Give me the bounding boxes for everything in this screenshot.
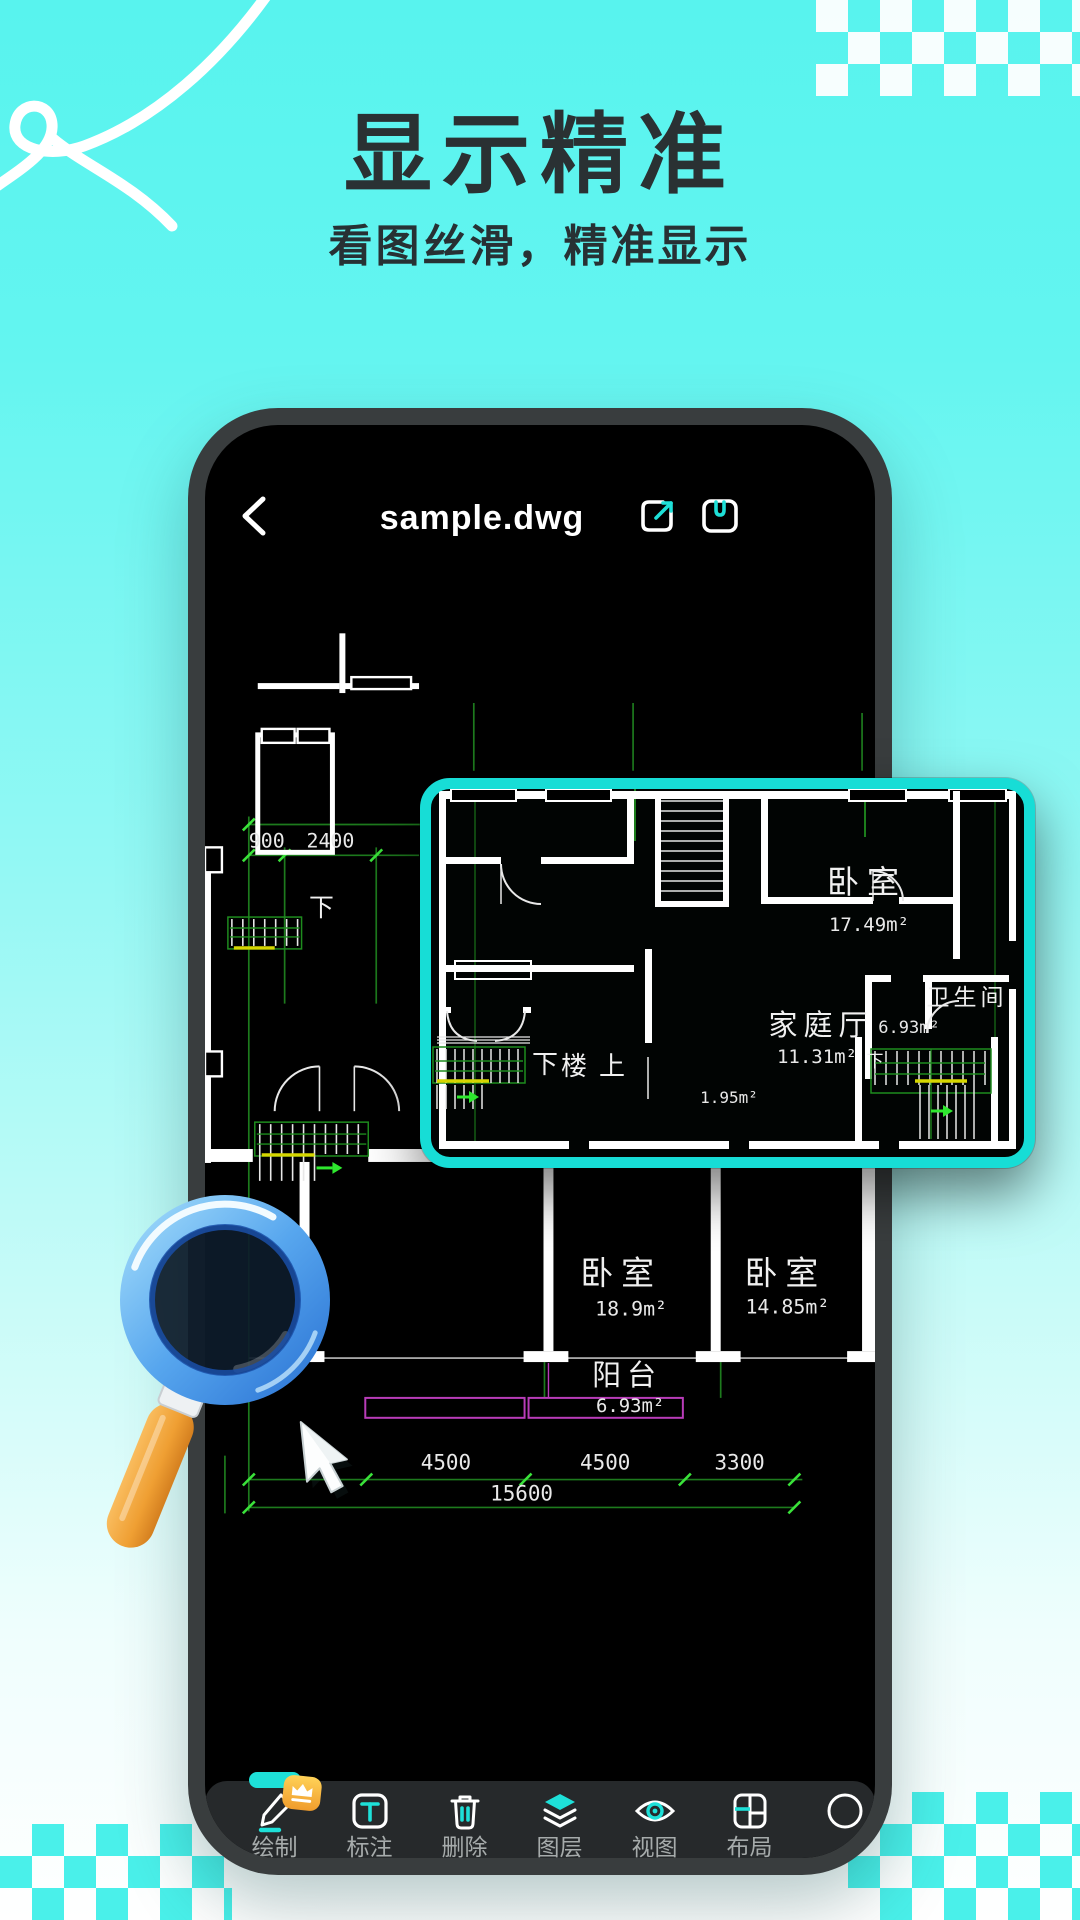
bedroom1-area: 18.9m² [595,1297,667,1320]
share-icon [637,495,679,537]
dim-4500-a: 4500 [421,1451,471,1475]
mag-bedroom-area: 17.49m² [829,914,909,936]
mag-upstairs-label: 楼上 [561,1051,637,1081]
stairs-left [433,1047,525,1109]
magnified-callout: 卧室 17.49m² 家庭厅 11.31m² 卫生间 6.93m² 下 楼上 1… [420,778,1035,1168]
back-button[interactable] [237,493,273,539]
cursor-arrow [292,1412,370,1507]
tool-label: 图层 [537,1834,583,1858]
window-band [437,1037,530,1043]
crown-badge [281,1774,322,1812]
bedroom2-area: 14.85m² [745,1295,829,1318]
stair-shaft-treads [661,801,723,891]
crown-icon [288,1781,316,1806]
balcony-label: 阳台 [592,1360,662,1392]
dim-2400: 2400 [306,829,354,852]
page-title: 显示精准 [0,84,1080,211]
stairs-center [871,1049,991,1139]
file-title: sample.dwg [322,499,642,538]
tool-annotate[interactable]: 标注 [322,1788,417,1858]
mag-livingroom-label: 家庭厅 [768,1009,873,1042]
magnifier-illustration [55,1160,395,1570]
tool-delete[interactable]: 删除 [417,1788,512,1858]
save-button[interactable] [699,495,741,537]
text-annotation-icon [347,1788,393,1834]
tool-layout[interactable]: 布局 [702,1788,797,1858]
page-subtitle: 看图丝滑，精准显示 [0,210,1080,274]
save-icon [699,495,741,537]
mag-livingroom-area: 11.31m² [777,1046,857,1068]
dim-900: 900 [249,829,285,852]
mag-stair-down-label: 下 [867,1052,884,1071]
tool-label: 删除 [442,1834,488,1858]
bedroom1-label: 卧室 [580,1254,662,1291]
checker-pattern-bottom-left [0,1824,232,1920]
layout-icon [727,1788,773,1834]
mag-down-label: 下 [532,1049,558,1079]
tool-label: 标注 [347,1834,393,1858]
layers-icon [537,1788,583,1834]
stairs-upper [228,917,302,949]
mag-bathroom-area: 6.93m² [878,1018,939,1038]
tool-view[interactable]: 视图 [607,1788,702,1858]
magnifier-handle [100,1376,210,1555]
eye-icon [632,1788,678,1834]
mag-small-area: 1.95m² [700,1088,758,1107]
dim-15600: 15600 [490,1481,553,1505]
balcony-area: 6.93m² [596,1395,664,1417]
bedroom2-label: 卧室 [745,1254,827,1291]
mag-bedroom-label: 卧室 [827,864,907,900]
dim-4500-b: 4500 [580,1451,630,1475]
tool-more-partial[interactable] [797,1788,875,1834]
circle-icon [822,1788,868,1834]
tool-layers[interactable]: 图层 [512,1788,607,1858]
stair-down-label: 下 [309,894,334,922]
tool-label: 布局 [727,1834,773,1858]
viewer-topbar: sample.dwg [205,425,875,575]
dim-3300: 3300 [714,1451,764,1475]
share-button[interactable] [637,495,679,537]
bottom-toolbar: 绘制 标注 删除 [205,1781,875,1858]
door-arcs [275,1066,399,1111]
mag-bathroom-label: 卫生间 [927,984,1008,1010]
magnified-plan: 卧室 17.49m² 家庭厅 11.31m² 卫生间 6.93m² 下 楼上 1… [431,789,1024,1157]
tool-draw[interactable]: 绘制 [227,1788,322,1858]
chevron-left-icon [237,493,273,539]
tool-label: 绘制 [252,1834,298,1858]
tool-label: 视图 [632,1834,678,1858]
checker-pattern-top-right [816,0,1080,96]
trash-icon [442,1788,488,1834]
